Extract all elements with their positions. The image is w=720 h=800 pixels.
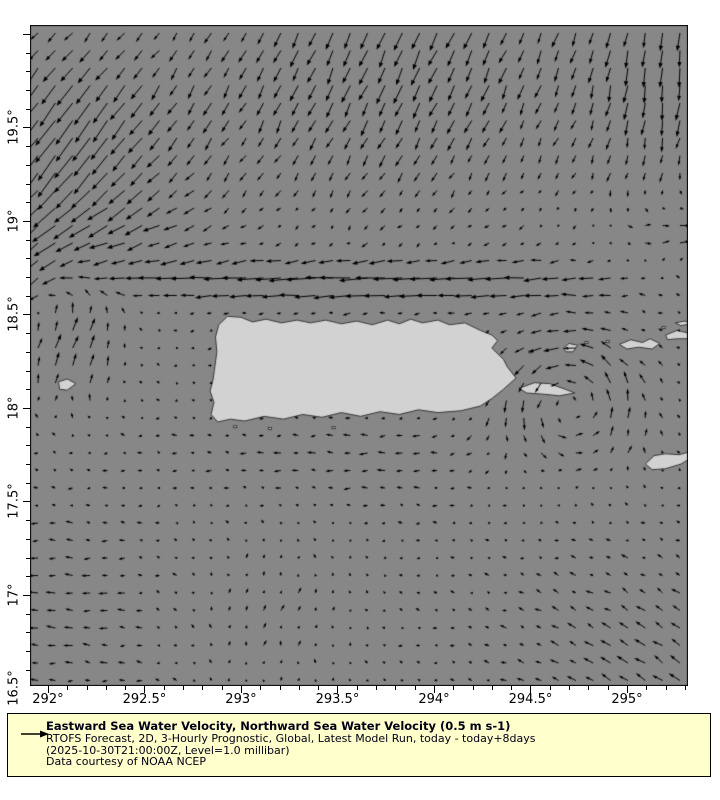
x-minor-tick [299,686,300,690]
x-minor-tick [685,686,686,690]
x-minor-tick [666,686,667,690]
x-minor-tick [415,686,416,690]
x-minor-tick [395,686,396,690]
y-major-tick [23,221,30,222]
y-major-tick [23,595,30,596]
y-tick-label: 19° [7,209,22,232]
y-minor-tick [26,202,30,203]
y-major-tick [23,127,30,128]
y-minor-tick [26,90,30,91]
legend-source-line: RTOFS Forecast, 2D, 3-Hourly Prognostic,… [46,733,704,745]
x-minor-tick [183,686,184,690]
y-tick-label: 16.5° [7,671,22,706]
y-tick-label: 17° [7,583,22,606]
x-minor-tick [164,686,165,690]
y-minor-tick [26,632,30,633]
x-minor-tick [106,686,107,690]
y-tick-label: 18° [7,396,22,419]
x-tick-label: 295° [611,692,642,707]
y-minor-tick [26,576,30,577]
x-minor-tick [202,686,203,690]
y-minor-tick [26,184,30,185]
y-major-tick [23,34,30,35]
y-minor-tick [26,258,30,259]
x-tick-label: 292.5° [123,692,167,707]
quiver-canvas [30,25,688,686]
y-major-tick [23,314,30,315]
y-minor-tick [26,427,30,428]
velocity-map-figure: 292°292.5°293°293.5°294°294.5°295° 16.5°… [0,0,720,800]
y-minor-tick [26,240,30,241]
x-minor-tick [492,686,493,690]
x-minor-tick [280,686,281,690]
legend-text-block: Eastward Sea Water Velocity, Northward S… [46,719,704,768]
x-minor-tick [608,686,609,690]
y-minor-tick [26,109,30,110]
y-minor-tick [26,651,30,652]
y-major-tick [23,408,30,409]
y-tick-label: 19.5° [7,110,22,145]
x-minor-tick [588,686,589,690]
x-minor-tick [453,686,454,690]
x-minor-tick [318,686,319,690]
x-minor-tick [550,686,551,690]
legend-box: Eastward Sea Water Velocity, Northward S… [7,713,711,777]
y-minor-tick [26,53,30,54]
x-minor-tick [511,686,512,690]
y-minor-tick [26,371,30,372]
x-minor-tick [87,686,88,690]
y-minor-tick [26,483,30,484]
y-minor-tick [26,296,30,297]
x-minor-tick [357,686,358,690]
y-minor-tick [26,445,30,446]
y-major-tick [23,501,30,502]
y-minor-tick [26,146,30,147]
y-minor-tick [26,71,30,72]
y-minor-tick [26,520,30,521]
x-minor-tick [569,686,570,690]
y-tick-label: 18.5° [7,297,22,332]
y-minor-tick [26,277,30,278]
y-minor-tick [26,539,30,540]
x-tick-label: 293.5° [316,692,360,707]
x-minor-tick [260,686,261,690]
y-minor-tick [26,558,30,559]
y-minor-tick [26,165,30,166]
y-minor-tick [26,464,30,465]
legend-credit-line: Data courtesy of NOAA NCEP [46,756,704,768]
x-tick-label: 293° [225,692,256,707]
x-tick-label: 292° [32,692,63,707]
x-tick-label: 294° [418,692,449,707]
map-plot-area [30,25,688,686]
x-minor-tick [646,686,647,690]
x-minor-tick [125,686,126,690]
y-minor-tick [26,333,30,334]
x-minor-tick [222,686,223,690]
y-minor-tick [26,352,30,353]
y-minor-tick [26,670,30,671]
y-minor-tick [26,389,30,390]
x-minor-tick [473,686,474,690]
x-minor-tick [67,686,68,690]
x-tick-label: 294.5° [509,692,553,707]
y-minor-tick [26,614,30,615]
y-tick-label: 17.5° [7,484,22,519]
legend-title: Eastward Sea Water Velocity, Northward S… [46,719,704,733]
x-minor-tick [376,686,377,690]
